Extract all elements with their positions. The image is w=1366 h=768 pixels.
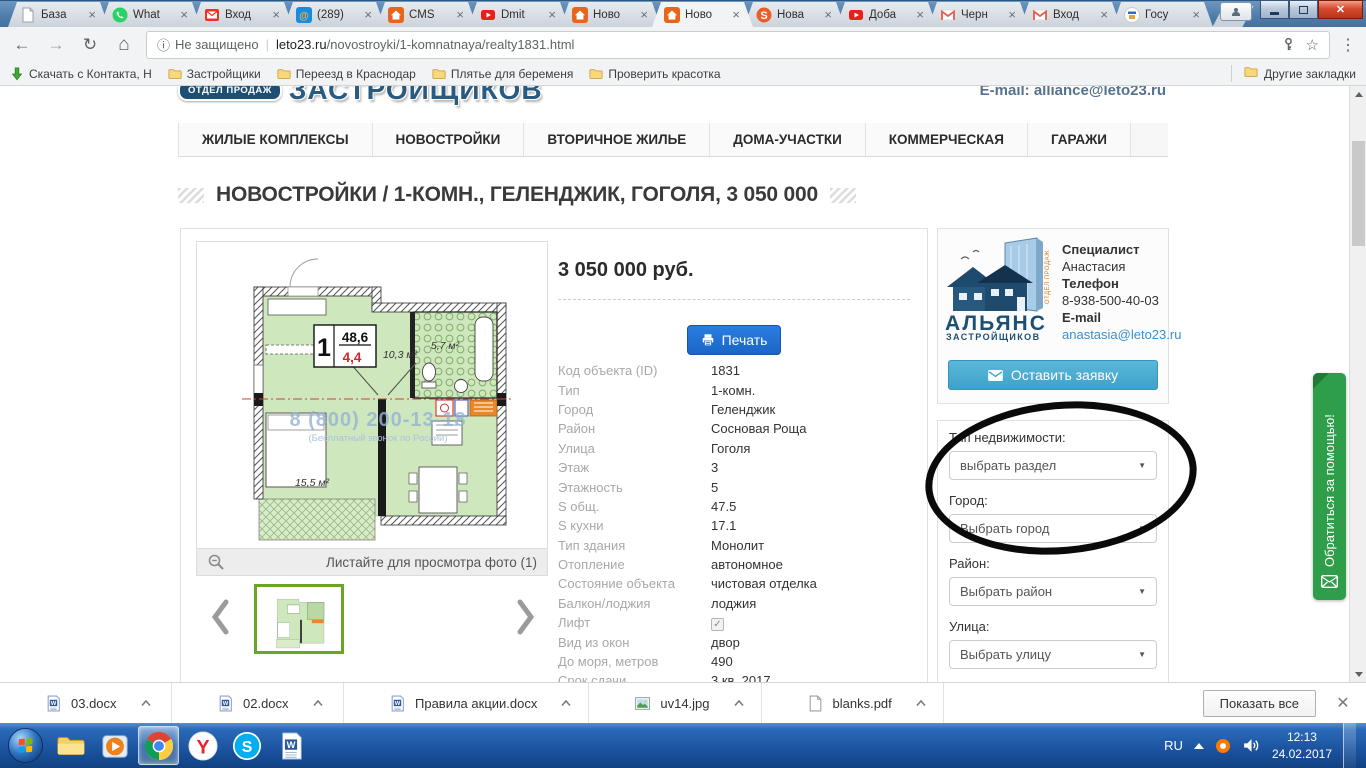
triangle-up-icon	[1355, 92, 1363, 97]
detail-label: S общ.	[558, 499, 711, 514]
plan-bedroom-area: 15,5 м²	[295, 477, 330, 489]
nav-item[interactable]: ЖИЛЫЕ КОМПЛЕКСЫ	[178, 123, 373, 156]
detail-row: Лифт ✓	[558, 613, 918, 632]
detail-row: Отопление автономное	[558, 555, 918, 574]
detail-value: 5	[711, 480, 718, 495]
phone-label: Телефон	[1062, 275, 1181, 292]
title-row: НОВОСТРОЙКИ / 1-КОМН., ГЕЛЕНДЖИК, ГОГОЛЯ…	[178, 183, 1168, 207]
nav-item[interactable]: ДОМА-УЧАСТКИ	[710, 123, 866, 156]
house-icon	[572, 7, 588, 23]
detail-label: Этаж	[558, 460, 711, 475]
detail-label: До моря, метров	[558, 654, 711, 669]
plan-room-number: 1	[317, 334, 331, 362]
detail-label: Улица	[558, 441, 711, 456]
filter-label: Город:	[949, 493, 1157, 508]
tab-close-icon[interactable]: ×	[1100, 7, 1108, 22]
home-button[interactable]: ⌂	[112, 34, 136, 56]
folder-icon	[589, 67, 603, 81]
detail-label: Срок сдачи	[558, 673, 711, 682]
search-filters-card: Тип недвижимости: выбрать раздел ▼ Город…	[937, 420, 1169, 682]
bookmark-item[interactable]: Скачать с Контакта, Н	[10, 67, 152, 81]
bookmarks-bar: Скачать с Контакта, Н Застройщики Переез…	[0, 62, 1366, 86]
detail-row: Улица Гоголя	[558, 439, 918, 458]
browser-tab[interactable]: Вход ×	[192, 2, 293, 27]
taskbar-skype-button[interactable]: S	[226, 726, 267, 765]
tab-close-icon[interactable]: ×	[640, 7, 648, 22]
download-name: Правила акции.docx	[415, 696, 537, 711]
stripe-decoration	[830, 188, 856, 203]
pdf-file-icon	[807, 695, 824, 712]
chevron-up-icon[interactable]	[560, 699, 572, 707]
back-button[interactable]: ←	[10, 35, 34, 55]
detail-label: Город	[558, 402, 711, 417]
minimize-icon	[1270, 12, 1279, 15]
address-bar[interactable]: ⓘ Не защищено | leto23.ru/novostroyki/1-…	[146, 31, 1330, 59]
maximize-icon	[1299, 6, 1308, 14]
browser-tab[interactable]: Черн ×	[928, 2, 1029, 27]
detail-row: Состояние объекта чистовая отделка	[558, 574, 918, 593]
tab-title: Госу	[1145, 9, 1188, 21]
detail-row: Этаж 3	[558, 458, 918, 477]
gos-icon	[1124, 7, 1140, 23]
house-icon	[388, 7, 404, 23]
tab-close-icon[interactable]: ×	[824, 7, 832, 22]
browser-tab[interactable]: S Нова ×	[744, 2, 845, 27]
filter-label: Улица:	[949, 619, 1157, 634]
filter-group: Тип недвижимости: выбрать раздел ▼	[949, 430, 1157, 480]
envelope-icon	[988, 370, 1003, 381]
detail-value: Геленджик	[711, 402, 775, 417]
ymail-icon	[204, 7, 220, 23]
detail-label: Лифт	[558, 615, 711, 630]
page-scrollbar[interactable]	[1349, 86, 1366, 682]
reload-button[interactable]: ↻	[78, 35, 102, 55]
zoom-magnifier-icon[interactable]	[207, 553, 225, 571]
tab-title: Вход	[1053, 9, 1096, 21]
filter-value: Выбрать улицу	[960, 647, 1051, 662]
bookmark-label: Скачать с Контакта, Н	[29, 67, 152, 81]
tab-close-icon[interactable]: ×	[916, 7, 924, 22]
logo-side-text: ОТДЕЛ ПРОДАЖ	[1045, 250, 1051, 304]
tab-close-icon[interactable]: ×	[1008, 7, 1016, 22]
chevron-up-icon[interactable]	[312, 699, 324, 707]
detail-row: S кухни 17.1	[558, 516, 918, 535]
filter-select[interactable]: Выбрать район ▼	[949, 577, 1157, 606]
browser-tab-strip: База × What × Вход × @ (289) × CMS × Dmi…	[0, 0, 1366, 27]
menu-kebab-icon[interactable]: ⋮	[1340, 35, 1356, 55]
detail-row: Код объекта (ID) 1831	[558, 361, 918, 380]
help-tab[interactable]: Обратиться за помощью!	[1313, 373, 1346, 600]
detail-value: чистовая отделка	[711, 576, 817, 591]
specialist-role: Специалист	[1062, 241, 1181, 258]
house-icon	[664, 7, 680, 23]
print-label: Печать	[722, 332, 768, 348]
password-key-icon[interactable]	[1281, 37, 1296, 52]
tab-title: Черн	[961, 9, 1004, 21]
download-item[interactable]: W 03.docx	[0, 683, 172, 723]
tab-close-icon[interactable]: ×	[180, 7, 188, 22]
detail-row: Тип здания Монолит	[558, 536, 918, 555]
sbadge-icon: S	[756, 7, 772, 23]
plan-watermark-sub: (Бесплатный звонок по России)	[308, 433, 447, 444]
web-page: ОТДЕЛ ПРОДАЖ ЗАСТРОЙЩИКОВ E-mail: allian…	[0, 86, 1366, 682]
listing-card: 1 48,6 4,4 10,3 м² 5,7 м² 15,5 м² 8 (800…	[180, 228, 928, 682]
downarrow-icon	[10, 67, 24, 81]
bookmark-item[interactable]: Плятье для беременя	[432, 67, 574, 81]
forward-button[interactable]: →	[44, 35, 68, 55]
hidden-icons-chevron[interactable]	[1194, 743, 1204, 749]
filter-label: Район:	[949, 556, 1157, 571]
chevron-up-icon[interactable]	[915, 699, 927, 707]
request-button[interactable]: Оставить заявку	[948, 360, 1158, 390]
logo-text: ЗАСТРОЙЩИКОВ	[289, 86, 543, 106]
person-icon	[1232, 8, 1240, 16]
thumbnail-strip	[196, 576, 548, 662]
tabs-container: База × What × Вход × @ (289) × CMS × Dmi…	[8, 2, 1204, 27]
detail-label: Отопление	[558, 557, 711, 572]
printer-icon	[701, 333, 715, 347]
tab-title: Вход	[225, 9, 268, 21]
mailru-icon: @	[296, 7, 312, 23]
tab-close-icon[interactable]: ×	[1192, 7, 1200, 22]
logo-line2: ЗАСТРОЙЩИКОВ	[946, 331, 1040, 342]
filter-select[interactable]: Выбрать улицу ▼	[949, 640, 1157, 669]
svg-text:W: W	[223, 701, 229, 707]
folder-icon	[277, 67, 291, 81]
help-tab-label: Обратиться за помощью!	[1322, 387, 1337, 567]
detail-label: Состояние объекта	[558, 576, 711, 591]
url-text: leto23.ru/novostroyki/1-komnatnaya/realt…	[276, 37, 574, 52]
filter-value: Выбрать район	[960, 584, 1052, 599]
window-controls: ✕	[1220, 0, 1363, 21]
browser-tab[interactable]: Dmit ×	[468, 2, 569, 27]
tab-close-icon[interactable]: ×	[364, 7, 372, 22]
browser-tab[interactable]: Доба ×	[836, 2, 937, 27]
volume-icon[interactable]	[1242, 738, 1261, 753]
detail-value: 47.5	[711, 499, 736, 514]
detail-label: Код объекта (ID)	[558, 363, 711, 378]
download-name: 03.docx	[71, 696, 117, 711]
details-table: Код объекта (ID) 1831 Тип 1-комн. Город …	[558, 361, 918, 682]
agency-logo: ОТДЕЛ ПРОДАЖ АЛЬЯНС ЗАСТРОЙЩИКОВ	[943, 237, 1057, 348]
filter-select[interactable]: Выбрать город ▼	[949, 514, 1157, 543]
scroll-up-arrow[interactable]	[1350, 86, 1366, 102]
tab-title: (289)	[317, 9, 360, 21]
detail-value: автономное	[711, 557, 783, 572]
nav-item[interactable]: ВТОРИЧНОЕ ЖИЛЬЕ	[524, 123, 710, 156]
bookmark-label: Плятье для беременя	[451, 67, 574, 81]
detail-value: 17.1	[711, 518, 736, 533]
scrollbar-thumb[interactable]	[1352, 141, 1365, 246]
lift-checkbox[interactable]: ✓	[711, 618, 724, 631]
browser-tab[interactable]: Госу ×	[1112, 2, 1213, 27]
detail-value: 490	[711, 654, 733, 669]
tab-title: Ново	[685, 9, 728, 21]
word-file-icon: W	[45, 695, 62, 712]
browser-tab[interactable]: Ново ×	[560, 2, 661, 27]
browser-tab[interactable]: @ (289) ×	[284, 2, 385, 27]
detail-label: Балкон/лоджия	[558, 596, 711, 611]
profile-button[interactable]	[1220, 2, 1252, 21]
detail-row: До моря, метров 490	[558, 652, 918, 671]
carousel-next-icon[interactable]	[516, 599, 538, 639]
detail-value: 3	[711, 460, 718, 475]
other-bookmarks[interactable]: Другие закладки	[1231, 65, 1356, 82]
separator: |	[266, 37, 269, 52]
browser-tab[interactable]: База ×	[8, 2, 109, 27]
folder-icon	[432, 67, 446, 81]
gmail-icon	[1032, 7, 1048, 23]
youtube-icon	[480, 7, 496, 23]
detail-label: Вид из окон	[558, 635, 711, 650]
browser-tab[interactable]: CMS ×	[376, 2, 477, 27]
detail-row: Город Геленджик	[558, 400, 918, 419]
specialist-info: Специалист Анастасия Телефон 8-938-500-4…	[1062, 241, 1181, 343]
detail-label: S кухни	[558, 518, 711, 533]
show-all-downloads-button[interactable]: Показать все	[1203, 690, 1316, 717]
filter-select[interactable]: выбрать раздел ▼	[949, 451, 1157, 480]
svg-text:W: W	[51, 701, 57, 707]
price: 3 050 000 руб.	[558, 259, 694, 282]
site-info[interactable]: ⓘ Не защищено	[157, 35, 259, 54]
detail-row: Балкон/лоджия лоджия	[558, 594, 918, 613]
taskbar: YSW RU 12:13 24.02.2017	[0, 723, 1366, 768]
logo-badge: ОТДЕЛ ПРОДАЖ	[178, 86, 282, 101]
specialist-email-link[interactable]: anastasia@leto23.ru	[1062, 326, 1181, 343]
nav-item[interactable]: ГАРАЖИ	[1028, 123, 1131, 156]
tab-title: Ново	[593, 9, 636, 21]
request-button-label: Оставить заявку	[1011, 367, 1118, 383]
detail-value: лоджия	[711, 596, 756, 611]
youtube-icon	[848, 7, 864, 23]
gallery-caption: Листайте для просмотра фото (1)	[326, 555, 537, 570]
detail-row: Тип 1-комн.	[558, 380, 918, 399]
tab-title: What	[133, 9, 176, 21]
plan-area-total: 48,6	[342, 330, 369, 345]
tab-title: Нова	[777, 9, 820, 21]
tab-title: CMS	[409, 9, 452, 21]
download-name: blanks.pdf	[833, 696, 892, 711]
svg-text:W: W	[286, 739, 295, 749]
clock-time: 12:13	[1272, 729, 1332, 745]
tab-close-icon[interactable]: ×	[456, 7, 464, 22]
chevron-down-icon: ▼	[1138, 461, 1146, 470]
taskbar-clock[interactable]: 12:13 24.02.2017	[1272, 729, 1332, 761]
plan-bath-area: 5,7 м²	[431, 340, 460, 352]
detail-label: Район	[558, 421, 711, 436]
detail-row: S общ. 47.5	[558, 497, 918, 516]
nav-item[interactable]: НОВОСТРОЙКИ	[373, 123, 525, 156]
filter-group: Улица: Выбрать улицу ▼	[949, 619, 1157, 669]
chevron-down-icon: ▼	[1138, 650, 1146, 659]
tab-close-icon[interactable]: ×	[88, 7, 96, 22]
folder-icon	[1244, 65, 1258, 82]
filter-value: Выбрать город	[960, 521, 1049, 536]
tab-title: Доба	[869, 9, 912, 21]
detail-row: Вид из окон двор	[558, 632, 918, 651]
security-label: Не защищено	[175, 37, 259, 52]
downloads-close-icon[interactable]: ✕	[1332, 693, 1354, 713]
photo-caption-bar: Листайте для просмотра фото (1)	[196, 549, 548, 576]
detail-value: 1831	[711, 363, 740, 378]
doc-icon	[20, 7, 36, 23]
downloads-bar: W 03.docx W 02.docx W Правила акции.docx…	[0, 682, 1366, 723]
plan-hall-area: 10,3 м²	[383, 349, 418, 361]
bookmark-item[interactable]: Переезд в Краснодар	[277, 67, 416, 81]
download-items: W 03.docx W 02.docx W Правила акции.docx…	[0, 683, 944, 723]
triangle-down-icon	[1355, 672, 1363, 677]
download-name: 02.docx	[243, 696, 289, 711]
plan-area-extra: 4,4	[343, 350, 362, 365]
svg-text:S: S	[241, 739, 252, 756]
detail-label: Этажность	[558, 480, 711, 495]
word-file-icon: W	[217, 695, 234, 712]
specialist-name: Анастасия	[1062, 258, 1181, 275]
bookmark-item[interactable]: Застройщики	[168, 67, 261, 81]
bookmark-item[interactable]: Проверить красотка	[589, 67, 720, 81]
detail-label: Тип здания	[558, 538, 711, 553]
detail-label: Тип	[558, 383, 711, 398]
chevron-up-icon[interactable]	[140, 699, 152, 707]
tab-close-icon[interactable]: ×	[272, 7, 280, 22]
detail-row: Этажность 5	[558, 477, 918, 496]
download-item[interactable]: blanks.pdf	[762, 683, 944, 723]
detail-row: Район Сосновая Роща	[558, 419, 918, 438]
browser-tab[interactable]: What ×	[100, 2, 201, 27]
show-desktop-button[interactable]	[1343, 723, 1356, 768]
floor-plan-photo[interactable]: 1 48,6 4,4 10,3 м² 5,7 м² 15,5 м² 8 (800…	[196, 241, 548, 549]
taskbar-wmp-button[interactable]	[94, 726, 135, 765]
taskbar-word-button[interactable]: W	[270, 726, 311, 765]
windows-orb-icon	[6, 726, 45, 765]
page-title: НОВОСТРОЙКИ / 1-КОМН., ГЕЛЕНДЖИК, ГОГОЛЯ…	[216, 183, 818, 207]
bookmark-label: Застройщики	[187, 67, 261, 81]
detail-value: Гоголя	[711, 441, 750, 456]
filter-label: Тип недвижимости:	[949, 430, 1157, 445]
taskbar-explorer-button[interactable]	[50, 726, 91, 765]
stripe-decoration	[178, 188, 204, 203]
scroll-down-arrow[interactable]	[1350, 666, 1366, 682]
gmail-icon	[940, 7, 956, 23]
taskbar-yandex-button[interactable]: Y	[182, 726, 223, 765]
bookmarks-items: Скачать с Контакта, Н Застройщики Переез…	[10, 67, 721, 81]
download-item[interactable]: W 02.docx	[172, 683, 344, 723]
print-button[interactable]: Печать	[687, 325, 781, 355]
phone-number: 8-938-500-40-03	[1062, 292, 1181, 309]
plan-thumbnail[interactable]	[254, 584, 344, 654]
browser-tab[interactable]: Вход ×	[1020, 2, 1121, 27]
filter-group: Город: Выбрать город ▼	[949, 493, 1157, 543]
detail-value: 3 кв. 2017	[711, 673, 771, 682]
close-icon: ✕	[1336, 3, 1345, 16]
clock-date: 24.02.2017	[1272, 746, 1332, 762]
info-icon: ⓘ	[157, 35, 170, 54]
detail-row: Срок сдачи 3 кв. 2017	[558, 671, 918, 682]
detail-value: Монолит	[711, 538, 764, 553]
download-item[interactable]: uv14.jpg	[589, 683, 761, 723]
detail-value: двор	[711, 635, 740, 650]
plan-watermark-phone: 8 (800) 200-13-18	[289, 409, 466, 431]
maximize-button[interactable]	[1289, 0, 1318, 19]
carousel-prev-icon[interactable]	[210, 599, 232, 639]
svg-text:@: @	[299, 10, 309, 21]
start-button[interactable]	[3, 725, 47, 767]
antivirus-tray-icon[interactable]	[1215, 738, 1231, 754]
filter-value: выбрать раздел	[960, 458, 1056, 473]
whatsapp-icon	[112, 7, 128, 23]
envelope-icon	[1321, 575, 1338, 588]
other-bookmarks-label: Другие закладки	[1264, 67, 1356, 81]
image-file-icon	[634, 695, 651, 712]
main-nav: ЖИЛЫЕ КОМПЛЕКСЫНОВОСТРОЙКИВТОРИЧНОЕ ЖИЛЬ…	[178, 123, 1168, 157]
word-file-icon: W	[389, 695, 406, 712]
minimize-button[interactable]	[1260, 0, 1289, 19]
divider	[558, 299, 910, 300]
nav-item[interactable]: КОММЕРЧЕСКАЯ	[866, 123, 1028, 156]
header-email: E-mail: alliance@leto23.ru	[980, 86, 1166, 99]
chevron-down-icon: ▼	[1138, 587, 1146, 596]
show-all-label: Показать все	[1220, 696, 1299, 711]
svg-text:S: S	[760, 10, 767, 22]
taskbar-apps: YSW	[50, 726, 311, 765]
filter-group: Район: Выбрать район ▼	[949, 556, 1157, 606]
svg-text:Y: Y	[196, 736, 209, 758]
tab-title: База	[41, 9, 84, 21]
browser-tab[interactable]: Ново ×	[652, 2, 753, 27]
bookmark-star-icon[interactable]: ☆	[1306, 36, 1319, 54]
bookmark-label: Переезд в Краснодар	[296, 67, 416, 81]
chevron-down-icon: ▼	[1138, 524, 1146, 533]
detail-value: Сосновая Роща	[711, 421, 806, 436]
email-label: E-mail	[1062, 309, 1181, 326]
tab-close-icon[interactable]: ×	[548, 7, 556, 22]
chevron-up-icon[interactable]	[733, 699, 745, 707]
folder-icon	[168, 67, 182, 81]
system-tray: RU 12:13 24.02.2017	[1164, 723, 1366, 768]
close-button[interactable]: ✕	[1318, 0, 1363, 19]
screen: База × What × Вход × @ (289) × CMS × Dmi…	[0, 0, 1366, 768]
download-item[interactable]: W Правила акции.docx	[344, 683, 589, 723]
detail-value: 1-комн.	[711, 383, 755, 398]
site-logo[interactable]: ОТДЕЛ ПРОДАЖ ЗАСТРОЙЩИКОВ	[178, 86, 543, 106]
svg-text:W: W	[395, 701, 401, 707]
browser-toolbar: ← → ↻ ⌂ ⓘ Не защищено | leto23.ru/novost…	[0, 27, 1366, 62]
language-indicator[interactable]: RU	[1164, 738, 1183, 753]
bookmark-label: Проверить красотка	[608, 67, 720, 81]
tab-title: Dmit	[501, 9, 544, 21]
tab-close-icon[interactable]: ×	[732, 7, 740, 22]
taskbar-chrome-button[interactable]	[138, 726, 179, 765]
download-name: uv14.jpg	[660, 696, 709, 711]
